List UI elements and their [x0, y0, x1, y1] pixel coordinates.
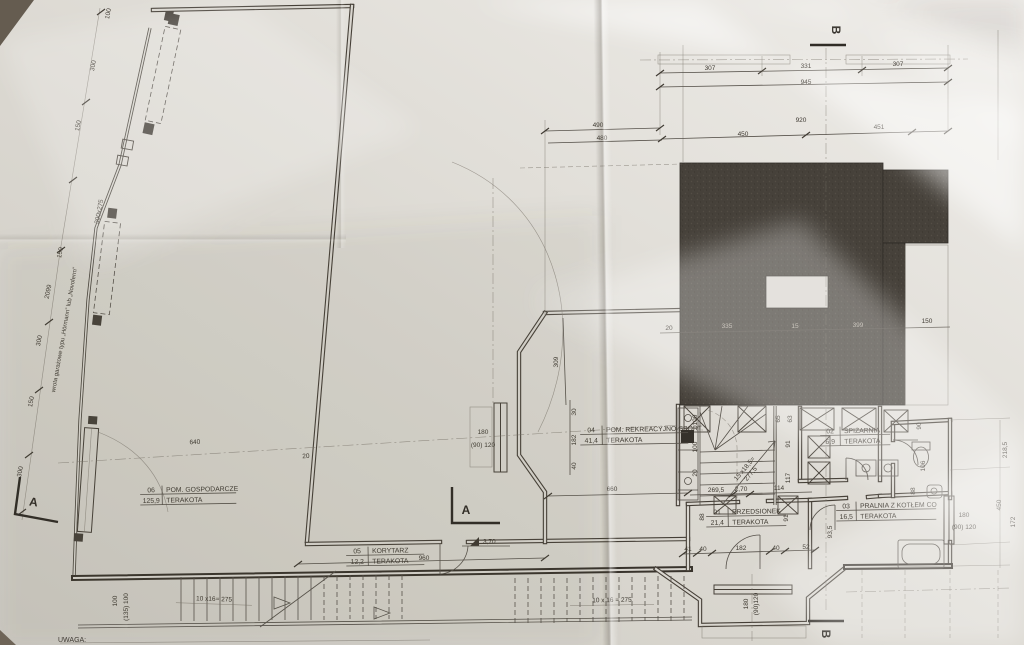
svg-text:01: 01 [713, 509, 721, 516]
svg-text:PRZEDSIONEK: PRZEDSIONEK [732, 508, 781, 516]
photographed-floor-plan: 15 x18,5= 277,5 [0, 0, 1024, 645]
svg-text:88: 88 [699, 513, 706, 521]
floor-plan-drawing: 15 x18,5= 277,5 [0, 0, 1024, 645]
svg-text:03: 03 [842, 503, 850, 510]
svg-text:52: 52 [802, 544, 810, 551]
svg-text:269,5: 269,5 [708, 487, 725, 494]
svg-text:21,4: 21,4 [711, 520, 725, 527]
svg-text:20: 20 [692, 469, 699, 477]
svg-text:16,5: 16,5 [840, 514, 854, 521]
svg-text:150: 150 [922, 318, 933, 325]
svg-text:B: B [829, 26, 843, 35]
svg-text:2,70: 2,70 [735, 486, 748, 493]
svg-text:40: 40 [699, 546, 707, 553]
svg-text:41: 41 [684, 546, 692, 553]
svg-text:114: 114 [774, 485, 785, 492]
svg-text:180: 180 [743, 598, 750, 609]
svg-text:307: 307 [705, 65, 716, 72]
svg-text:117: 117 [785, 472, 792, 483]
svg-text:93,5: 93,5 [827, 525, 834, 538]
svg-text:91: 91 [785, 440, 792, 448]
svg-text:100: 100 [692, 441, 699, 452]
svg-text:182: 182 [736, 545, 747, 552]
svg-text:TERAKOTA: TERAKOTA [732, 519, 769, 527]
svg-text:(90)120: (90)120 [753, 592, 760, 615]
svg-text:450: 450 [738, 131, 749, 138]
svg-text:40: 40 [772, 545, 780, 552]
svg-text:920: 920 [796, 117, 807, 124]
svg-text:307: 307 [893, 61, 904, 68]
svg-text:100: 100 [692, 414, 699, 425]
